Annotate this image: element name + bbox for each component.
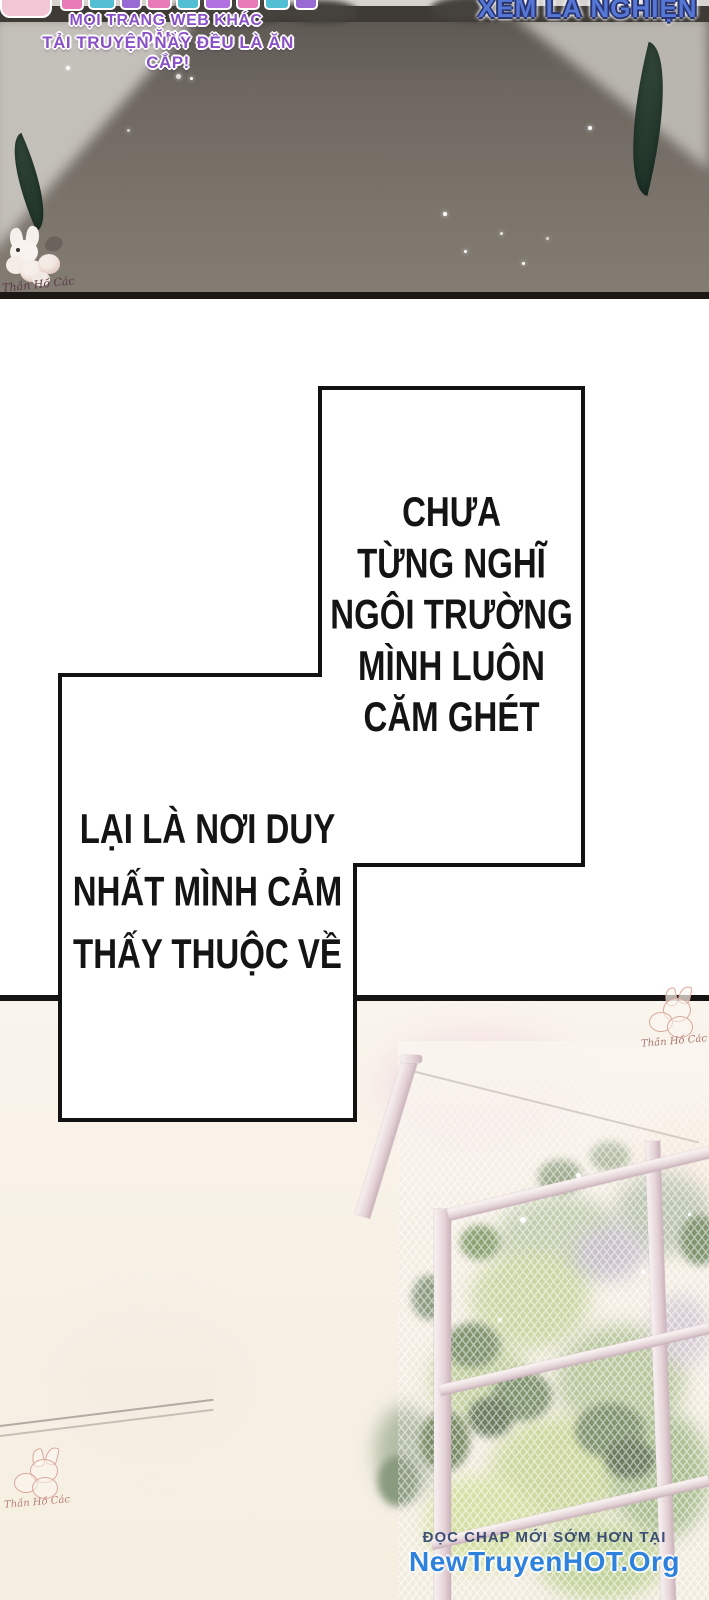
panel-border [0,292,709,299]
scanlation-fox-logo: Thần Hồ Các [2,226,66,292]
webtoon-page: Thần Hồ Các MỌI TRANG WEB KHÁC ĐĂNG TẢI … [0,0,709,1600]
sparkle [127,129,130,132]
sparkle [498,1318,502,1322]
narration-line: NGÔI TRƯỜNG [318,589,585,640]
sparkle [443,212,447,216]
sparkle [546,237,549,240]
narration-line: THẤY THUỘC VỀ [58,923,357,986]
clipped-text-remnant [88,0,116,10]
clipped-text-remnant [204,0,232,10]
narration-text-left: LẠI LÀ NƠI DUY NHẤT MÌNH CẢM THẤY THUỘC … [58,798,357,986]
group-signature: Thần Hồ Các [2,274,76,293]
site-watermark: ĐỌC CHAP MỚI SỚM HƠN TẠI NewTruyenHOT.Or… [380,1529,709,1578]
group-signature: Thần Hồ Các [641,1033,708,1050]
fence-post-cap [400,1055,422,1063]
narration-line: CHƯA [318,486,585,537]
sparkle [176,74,181,79]
narration-line: LẠI LÀ NƠI DUY [58,798,357,861]
sparkle [688,1213,691,1216]
sparkle [588,126,592,130]
narration-line: NHẤT MÌNH CẢM [58,861,357,924]
anti-piracy-line2: TẢI TRUYỆN NÀY ĐỀU LÀ ĂN CẮP! [40,33,296,73]
narration-line: CĂM GHÉT [318,691,585,742]
sparkle [641,1270,645,1274]
site-watermark-url: NewTruyenHOT.Org [380,1546,709,1578]
sparkle [190,77,193,80]
clipped-text-remnant [264,0,290,10]
mesh-highlight [398,1041,709,1201]
sparkle [500,232,503,235]
group-signature: Thần Hồ Các [4,1494,71,1511]
sparkle [520,1217,526,1223]
cream-wash [40,1301,260,1461]
sparkle [522,262,525,265]
clipped-text-remnant [146,0,172,10]
clipped-text-remnant [60,0,84,11]
site-watermark-tagline: ĐỌC CHAP MỚI SỚM HƠN TẠI [380,1529,709,1546]
clipped-text-remnant [294,0,318,10]
clipped-text-remnant [176,0,200,10]
narration-text-right: CHƯA TỪNG NGHĨ NGÔI TRƯỜNG MÌNH LUÔN CĂM… [318,486,585,742]
anti-piracy-slogan: XEM LÀ NGHIỆN [478,0,709,24]
clipped-text-remnant [236,0,260,10]
sparkle [464,250,467,253]
clipped-logo-remnant [0,0,52,18]
sparkle [576,1173,581,1178]
narration-line: MÌNH LUÔN [318,640,585,691]
narration-line: TỪNG NGHĨ [318,537,585,588]
panel-shadow-scene: Thần Hồ Các MỌI TRANG WEB KHÁC ĐĂNG TẢI … [0,0,709,293]
scanlation-fox-logo: Thần Hồ Các [4,1447,66,1513]
scanlation-fox-logo: Thần Hồ Các [641,984,709,1052]
clipped-text-remnant [120,0,142,10]
